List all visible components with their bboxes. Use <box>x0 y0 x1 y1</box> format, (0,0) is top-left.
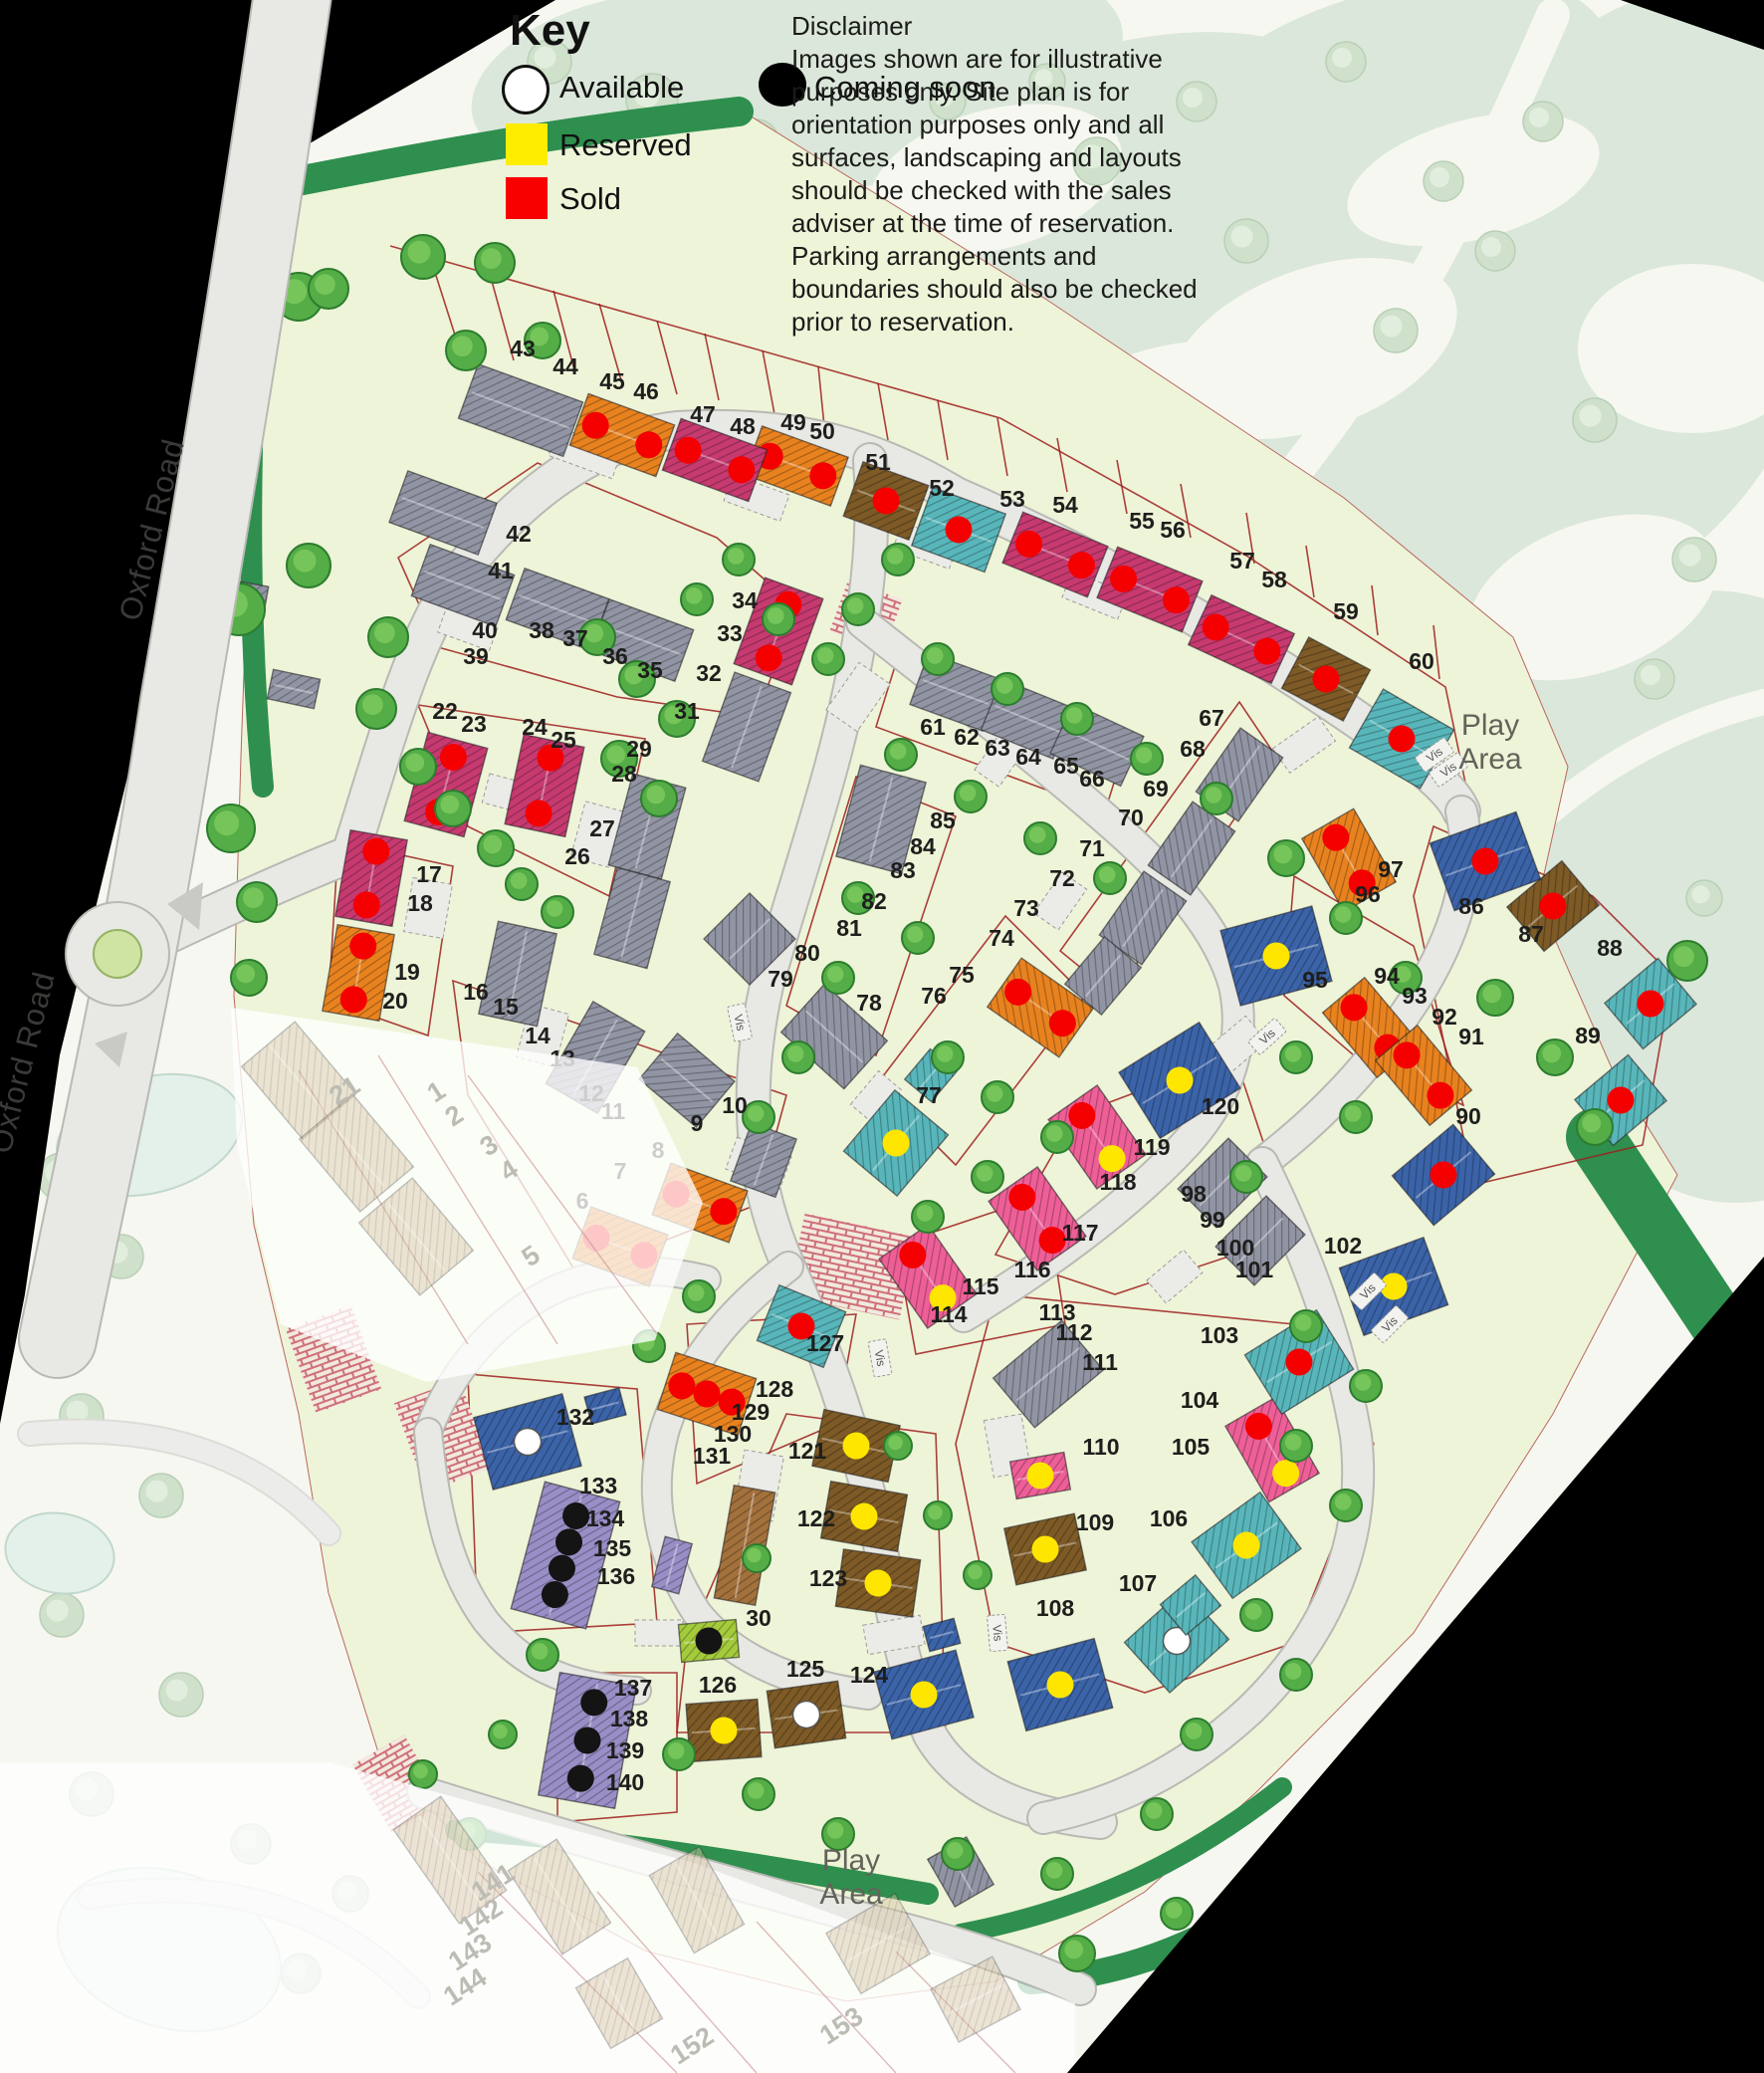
tree-icon <box>1024 822 1056 854</box>
tree-icon <box>1280 1659 1312 1691</box>
plot-number-label[interactable]: 48 <box>730 413 756 439</box>
plot-number-label[interactable]: 134 <box>586 1505 625 1531</box>
tree-icon <box>1181 1719 1213 1750</box>
plot-number-label[interactable]: 106 <box>1150 1505 1188 1531</box>
plot-house[interactable] <box>678 1620 739 1663</box>
legend-available-label: Available <box>559 70 684 106</box>
plot-number-label[interactable]: 116 <box>1013 1257 1050 1282</box>
plot-number-label[interactable]: 98 <box>1181 1181 1207 1207</box>
plot-number-label[interactable]: 86 <box>1458 893 1484 919</box>
plot-number-label[interactable]: 117 <box>1061 1220 1098 1246</box>
svg-text:Vis: Vis <box>990 1624 1004 1642</box>
tree-icon <box>435 791 471 826</box>
tree-icon <box>1201 783 1232 814</box>
plot-number-label[interactable]: 15 <box>493 994 519 1020</box>
plot-number-label[interactable]: 32 <box>696 660 722 686</box>
plot-number-label[interactable]: 40 <box>472 617 498 643</box>
plot-number-label[interactable]: 101 <box>1235 1257 1274 1282</box>
plot-number-label[interactable]: 102 <box>1324 1233 1362 1259</box>
plot-number-label[interactable]: 121 <box>788 1438 827 1464</box>
tree-icon <box>885 739 917 771</box>
plot-number-label[interactable]: 34 <box>732 587 758 613</box>
plot-number-label[interactable]: 96 <box>1355 881 1381 907</box>
plot-number-label[interactable]: 125 <box>786 1656 825 1682</box>
plot-number-label[interactable]: 94 <box>1374 963 1400 989</box>
plot-number-label[interactable]: 118 <box>1099 1169 1136 1195</box>
plot-number-label[interactable]: 41 <box>488 558 514 583</box>
plot-number-label[interactable]: 81 <box>836 915 862 941</box>
plot-number-label[interactable]: 115 <box>962 1273 998 1299</box>
plot-number-label[interactable]: 16 <box>463 979 489 1005</box>
play-area-label: PlayArea <box>819 1844 883 1911</box>
plot-number-label[interactable]: 92 <box>1432 1004 1457 1030</box>
tree-icon <box>1280 1041 1312 1073</box>
tree-icon <box>506 868 538 900</box>
plot-number-label[interactable]: 66 <box>1079 766 1105 792</box>
plot-number-label[interactable]: 124 <box>850 1662 889 1688</box>
plot-number-label[interactable]: 19 <box>394 959 420 985</box>
plot-number-label[interactable]: 89 <box>1575 1023 1601 1048</box>
plot-house[interactable] <box>767 1681 845 1747</box>
plot-number-label[interactable]: 56 <box>1160 517 1186 543</box>
plot-number-label[interactable]: 119 <box>1133 1134 1170 1160</box>
play-area-label: PlayArea <box>1458 709 1522 776</box>
tree-icon <box>527 1639 558 1671</box>
plot-number-label[interactable]: 85 <box>930 807 956 833</box>
plot-number-label[interactable]: 82 <box>861 888 887 914</box>
tree-icon <box>1268 840 1304 876</box>
plot-number-label[interactable]: 36 <box>602 643 628 669</box>
tree-icon <box>681 583 713 615</box>
plot-number-label[interactable]: 110 <box>1082 1434 1119 1460</box>
plot-number-label[interactable]: 111 <box>1082 1349 1118 1375</box>
tree-icon <box>1059 1936 1095 1971</box>
tree-icon <box>884 1432 912 1460</box>
legend-sold-swatch <box>506 177 548 219</box>
tree-icon <box>368 617 408 657</box>
tree-icon <box>475 243 515 283</box>
tree-icon <box>743 1101 774 1133</box>
plot-number-label[interactable]: 93 <box>1402 983 1428 1009</box>
tree-icon <box>1240 1599 1272 1631</box>
plot-number-label[interactable]: 91 <box>1458 1024 1484 1049</box>
disclaimer-body: Images shown are for illustrative purpos… <box>791 43 1221 339</box>
plot-number-label[interactable]: 57 <box>1229 548 1255 574</box>
tree-icon <box>743 1778 774 1810</box>
plot-number-label[interactable]: 123 <box>809 1565 847 1591</box>
tree-icon <box>400 749 436 785</box>
plot-number-label[interactable]: 38 <box>529 617 554 643</box>
plot-number-label[interactable]: 44 <box>552 353 578 379</box>
plot-number-label[interactable]: 61 <box>920 714 946 740</box>
tree-icon <box>912 1201 944 1233</box>
plot-number-label[interactable]: 126 <box>699 1672 737 1698</box>
tree-icon <box>207 805 255 852</box>
tree-icon <box>902 922 934 954</box>
plot-number-label[interactable]: 22 <box>432 698 458 724</box>
plot-number-label[interactable]: 14 <box>525 1023 551 1048</box>
tree-icon <box>1290 1310 1322 1342</box>
plot-number-label[interactable]: 30 <box>746 1605 772 1631</box>
plot-number-label[interactable]: 42 <box>506 521 532 547</box>
plot-number-label[interactable]: 120 <box>1202 1093 1239 1119</box>
plot-number-label[interactable]: 137 <box>614 1675 652 1701</box>
tree-icon <box>763 603 794 635</box>
svg-text:Vis: Vis <box>872 1349 889 1368</box>
plot-number-label[interactable]: 99 <box>1200 1207 1225 1233</box>
plot-number-label[interactable]: 113 <box>1038 1299 1075 1325</box>
visitor-parking-marker: Vis <box>987 1614 1007 1651</box>
plot-number-label[interactable]: 49 <box>780 409 806 435</box>
tree-icon <box>1131 743 1163 775</box>
tree-icon <box>924 1501 952 1529</box>
plot-number-label[interactable]: 67 <box>1199 705 1224 731</box>
tree-icon <box>489 1721 517 1748</box>
plot-number-label[interactable]: 35 <box>637 657 663 683</box>
plot-number-label[interactable]: 18 <box>407 890 433 916</box>
tree-icon <box>478 830 514 866</box>
plot-number-label[interactable]: 28 <box>611 761 637 787</box>
plot-number-label[interactable]: 77 <box>916 1082 942 1108</box>
plot-number-label[interactable]: 39 <box>463 643 489 669</box>
plot-number-label[interactable]: 72 <box>1049 865 1075 891</box>
plot-number-label[interactable]: 74 <box>989 925 1014 951</box>
plot-number-label[interactable]: 52 <box>929 475 955 501</box>
tree-icon <box>1041 1121 1073 1153</box>
plot-house[interactable] <box>835 1549 920 1617</box>
tree-icon <box>1280 1430 1312 1462</box>
plot-number-label[interactable]: 27 <box>589 815 615 841</box>
plot-number-label[interactable]: 50 <box>809 418 835 444</box>
tree-icon <box>1340 1101 1372 1133</box>
plot-number-label[interactable]: 88 <box>1597 935 1623 961</box>
tree-icon <box>822 962 854 994</box>
tree-icon <box>356 689 396 729</box>
tree-icon <box>955 781 987 812</box>
tree-icon <box>723 544 755 576</box>
plot-number-label[interactable]: 79 <box>768 966 793 992</box>
legend-title: Key <box>510 6 590 56</box>
disclaimer-title: Disclaimer <box>791 10 1221 43</box>
plot-number-label[interactable]: 25 <box>551 727 576 753</box>
plot-number-label[interactable]: 59 <box>1333 598 1359 624</box>
plot-number-label[interactable]: 43 <box>510 336 536 361</box>
plot-number-label[interactable]: 9 <box>691 1110 704 1136</box>
plot-number-label[interactable]: 17 <box>416 861 442 887</box>
plot-number-label[interactable]: 97 <box>1378 856 1404 882</box>
tree-icon <box>1094 862 1126 894</box>
plot-number-label[interactable]: 127 <box>806 1330 844 1356</box>
plot-number-label[interactable]: 109 <box>1076 1509 1114 1535</box>
plot-number-label[interactable]: 31 <box>674 698 700 724</box>
tree-icon <box>1577 1109 1613 1145</box>
tree-icon <box>309 269 348 309</box>
plot-number-label[interactable]: 26 <box>564 843 590 869</box>
tree-icon <box>446 331 486 370</box>
legend-sold-label: Sold <box>559 181 621 217</box>
legend-reserved-label: Reserved <box>559 127 692 163</box>
tree-icon <box>663 1738 695 1770</box>
plot-number-label[interactable]: 140 <box>606 1769 644 1795</box>
tree-icon <box>992 673 1023 705</box>
plot-number-label[interactable]: 33 <box>717 620 743 646</box>
plot-number-label[interactable]: 76 <box>921 983 947 1009</box>
tree-icon <box>409 1760 437 1788</box>
tree-icon <box>1537 1039 1573 1075</box>
tree-icon <box>812 643 844 675</box>
tree-icon <box>287 544 331 587</box>
plot-number-label[interactable]: 95 <box>1302 967 1328 993</box>
plot-number-label[interactable]: 114 <box>930 1301 967 1327</box>
tree-icon <box>1230 1161 1262 1193</box>
tree-icon <box>237 882 277 922</box>
plot-number-label[interactable]: 139 <box>606 1737 644 1763</box>
plot-number-label[interactable]: 107 <box>1119 1570 1157 1596</box>
tree-icon <box>743 1544 771 1572</box>
tree-icon <box>882 544 914 576</box>
plot-number-label[interactable]: 37 <box>562 625 588 651</box>
plot-number-label[interactable]: 84 <box>910 833 936 859</box>
tree-icon <box>641 781 677 816</box>
plot-number-label[interactable]: 108 <box>1036 1595 1075 1621</box>
plot-number-label[interactable]: 71 <box>1079 835 1105 861</box>
site-plan-screenshot: VisVisVisVisVisVisVisVis6789101112131415… <box>0 0 1764 2073</box>
tree-icon <box>1161 1898 1193 1930</box>
tree-icon <box>1477 980 1513 1016</box>
tree-icon <box>683 1280 715 1312</box>
tree-icon <box>842 593 874 625</box>
tree-icon <box>542 896 573 928</box>
plot-number-label[interactable]: 80 <box>794 940 820 966</box>
plot-number-label[interactable]: 63 <box>985 735 1010 761</box>
plot-number-label[interactable]: 29 <box>626 736 652 762</box>
legend-available-swatch <box>502 65 550 115</box>
tree-icon <box>1041 1858 1073 1890</box>
plot-number-label[interactable]: 69 <box>1143 776 1169 802</box>
plot-number-label[interactable]: 45 <box>599 368 625 394</box>
tree-icon <box>782 1041 814 1073</box>
plot-number-label[interactable]: 133 <box>579 1473 617 1498</box>
plot-number-label[interactable]: 10 <box>722 1092 748 1118</box>
legend-reserved-swatch <box>506 123 548 165</box>
plot-number-label[interactable]: 24 <box>522 714 548 740</box>
plot-number-label[interactable]: 58 <box>1261 567 1287 592</box>
plot-number-label[interactable]: 55 <box>1129 508 1155 534</box>
disclaimer: Disclaimer Images shown are for illustra… <box>791 10 1221 339</box>
plot-number-label[interactable]: 75 <box>949 962 975 988</box>
tree-icon <box>922 643 954 675</box>
plot-number-label[interactable]: 54 <box>1052 492 1078 518</box>
tree-icon <box>972 1161 1003 1193</box>
tree-icon <box>1061 703 1093 735</box>
plot-house[interactable] <box>686 1700 762 1762</box>
plot-number-label[interactable]: 78 <box>856 990 882 1016</box>
plot-number-label[interactable]: 104 <box>1181 1387 1219 1413</box>
tree-icon <box>982 1081 1013 1113</box>
tree-icon <box>1141 1798 1173 1830</box>
tree-icon <box>932 1041 964 1073</box>
tree-icon <box>1667 941 1707 981</box>
plot-number-label[interactable]: 68 <box>1180 736 1206 762</box>
plot-number-label[interactable]: 132 <box>556 1404 594 1430</box>
plot-number-label[interactable]: 103 <box>1201 1322 1238 1348</box>
tree-icon <box>942 1838 974 1870</box>
plot-number-label[interactable]: 131 <box>693 1443 732 1469</box>
tree-icon <box>964 1561 992 1589</box>
plot-number-label[interactable]: 47 <box>690 401 716 427</box>
plot-number-label[interactable]: 70 <box>1118 805 1144 830</box>
tree-icon <box>401 235 445 279</box>
tree-icon <box>1330 1490 1362 1521</box>
plot-number-label[interactable]: 136 <box>597 1563 635 1589</box>
plot-number-label[interactable]: 20 <box>382 988 408 1014</box>
plot-number-label[interactable]: 51 <box>865 449 891 475</box>
plot-number-label[interactable]: 53 <box>999 486 1025 512</box>
plot-number-label[interactable]: 138 <box>610 1706 649 1731</box>
plot-number-label[interactable]: 105 <box>1172 1434 1211 1460</box>
plot-number-label[interactable]: 135 <box>593 1535 632 1561</box>
plot-number-label[interactable]: 87 <box>1518 921 1544 947</box>
plot-number-label[interactable]: 73 <box>1013 895 1039 921</box>
plot-number-label[interactable]: 64 <box>1015 744 1041 770</box>
plot-number-label[interactable]: 60 <box>1409 648 1434 674</box>
plot-number-label[interactable]: 23 <box>461 711 487 737</box>
tree-icon <box>1350 1370 1382 1402</box>
tree-icon <box>231 960 267 996</box>
plot-number-label[interactable]: 83 <box>890 857 916 883</box>
plot-number-label[interactable]: 90 <box>1455 1103 1481 1129</box>
plot-number-label[interactable]: 122 <box>797 1505 835 1531</box>
plot-number-label[interactable]: 62 <box>954 724 980 750</box>
plot-number-label[interactable]: 65 <box>1053 753 1079 779</box>
plot-number-label[interactable]: 46 <box>633 378 659 404</box>
